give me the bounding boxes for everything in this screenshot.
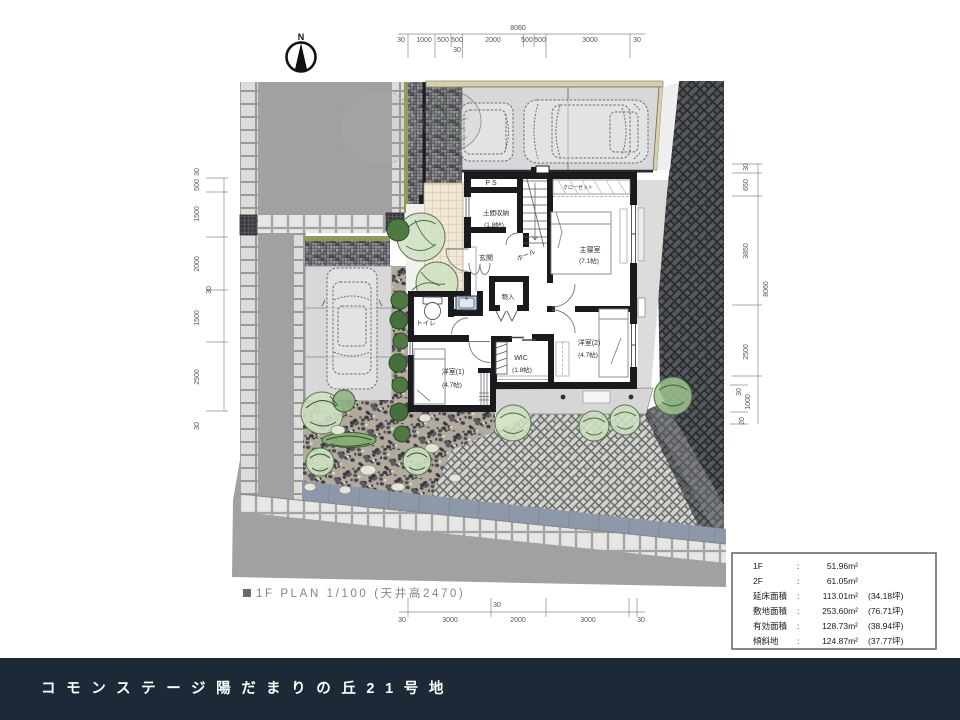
svg-text:物入: 物入	[502, 292, 516, 301]
svg-text:主寝室: 主寝室	[580, 245, 601, 254]
svg-text:3850: 3850	[743, 243, 750, 259]
svg-text:500: 500	[437, 37, 449, 44]
svg-text:(37.77坪): (37.77坪)	[868, 636, 904, 646]
svg-text:2F: 2F	[753, 576, 763, 586]
svg-text:128.73m²: 128.73m²	[822, 621, 858, 631]
svg-text:(76.71坪): (76.71坪)	[868, 606, 904, 616]
svg-text:(38.94坪): (38.94坪)	[868, 621, 904, 631]
svg-text:有効面積: 有効面積	[753, 621, 788, 631]
svg-text:(4.7帖): (4.7帖)	[442, 380, 462, 389]
svg-text:500: 500	[534, 37, 546, 44]
svg-text:30: 30	[493, 602, 501, 609]
svg-text:61.05m²: 61.05m²	[827, 576, 858, 586]
svg-text::: :	[797, 636, 799, 646]
svg-text:253.60m²: 253.60m²	[822, 606, 858, 616]
svg-text::: :	[797, 576, 799, 586]
svg-text:(1.8帖): (1.8帖)	[484, 220, 504, 229]
svg-text:傾斜地: 傾斜地	[753, 636, 779, 646]
svg-text:N: N	[298, 32, 305, 42]
svg-text:敷地面積: 敷地面積	[753, 606, 788, 616]
svg-text:500: 500	[521, 37, 533, 44]
svg-text:土間収納: 土間収納	[483, 208, 509, 217]
svg-text:3000: 3000	[580, 617, 596, 624]
svg-text:3000: 3000	[582, 37, 598, 44]
svg-text::: :	[797, 561, 799, 571]
svg-text:クローゼット: クローゼット	[563, 184, 593, 191]
svg-text::: :	[797, 621, 799, 631]
svg-text:コモンステージ陽だまりの丘21号地: コモンステージ陽だまりの丘21号地	[41, 679, 454, 697]
svg-text:30: 30	[194, 168, 201, 176]
svg-text:2500: 2500	[194, 369, 201, 385]
svg-text:1000: 1000	[745, 394, 752, 410]
svg-text:2500: 2500	[743, 344, 750, 360]
svg-text:30: 30	[736, 388, 743, 396]
svg-text:30: 30	[398, 617, 406, 624]
svg-text::: :	[797, 591, 799, 601]
svg-text:30: 30	[637, 617, 645, 624]
svg-text:洋室(2): 洋室(2)	[578, 338, 601, 347]
svg-text:3000: 3000	[442, 617, 458, 624]
svg-text:8060: 8060	[510, 25, 526, 32]
svg-text:650: 650	[743, 179, 750, 191]
svg-text:51.96m²: 51.96m²	[827, 561, 858, 571]
svg-text:1500: 1500	[194, 310, 201, 326]
svg-text:2000: 2000	[194, 256, 201, 272]
svg-text:2000: 2000	[485, 37, 501, 44]
svg-text:1F PLAN 1/100 (天井高2470): 1F PLAN 1/100 (天井高2470)	[256, 586, 465, 600]
svg-text:2000: 2000	[510, 617, 526, 624]
svg-text:1000: 1000	[416, 37, 432, 44]
svg-text:洋室(1): 洋室(1)	[442, 367, 465, 376]
svg-text:PS: PS	[485, 180, 498, 187]
svg-text:500: 500	[451, 37, 463, 44]
svg-text:113.01m²: 113.01m²	[823, 591, 858, 601]
svg-text:トイレ: トイレ	[416, 320, 436, 327]
svg-text:WIC: WIC	[514, 355, 528, 362]
svg-text:(1.8帖): (1.8帖)	[512, 365, 532, 374]
svg-text:(4.7帖): (4.7帖)	[578, 350, 598, 359]
svg-text:1F: 1F	[753, 561, 763, 571]
svg-text:(7.1帖): (7.1帖)	[579, 256, 599, 265]
svg-text:20: 20	[739, 417, 746, 425]
svg-text:124.87m²: 124.87m²	[822, 636, 858, 646]
svg-text:8060: 8060	[763, 281, 770, 297]
svg-text:30: 30	[397, 37, 405, 44]
svg-text:玄関: 玄関	[479, 253, 493, 262]
svg-text:500: 500	[194, 179, 201, 191]
svg-text:30: 30	[453, 47, 461, 54]
svg-text:延床面積: 延床面積	[753, 591, 788, 601]
svg-text:30: 30	[194, 422, 201, 430]
svg-text:30: 30	[743, 163, 750, 171]
svg-text:30: 30	[206, 286, 213, 294]
svg-text:1500: 1500	[194, 206, 201, 222]
svg-text:30: 30	[633, 37, 641, 44]
svg-text::: :	[797, 606, 799, 616]
svg-text:(34.18坪): (34.18坪)	[868, 591, 904, 601]
svg-text:P.S: P.S	[539, 174, 547, 180]
